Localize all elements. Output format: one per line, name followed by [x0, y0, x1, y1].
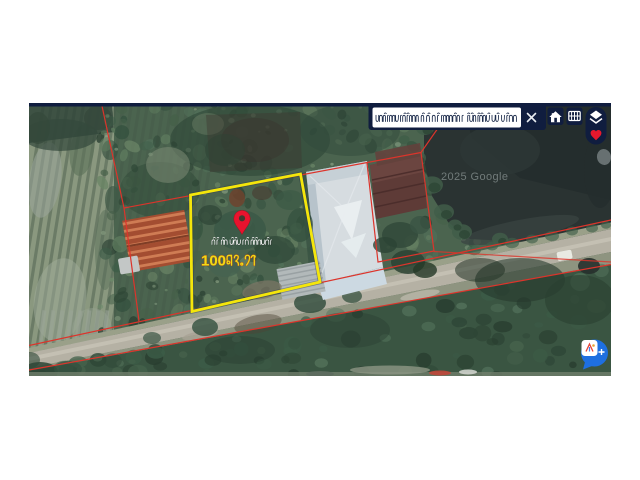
svg-text:100: 100 — [201, 253, 226, 270]
svg-text:2025 Google: 2025 Google — [441, 171, 508, 183]
